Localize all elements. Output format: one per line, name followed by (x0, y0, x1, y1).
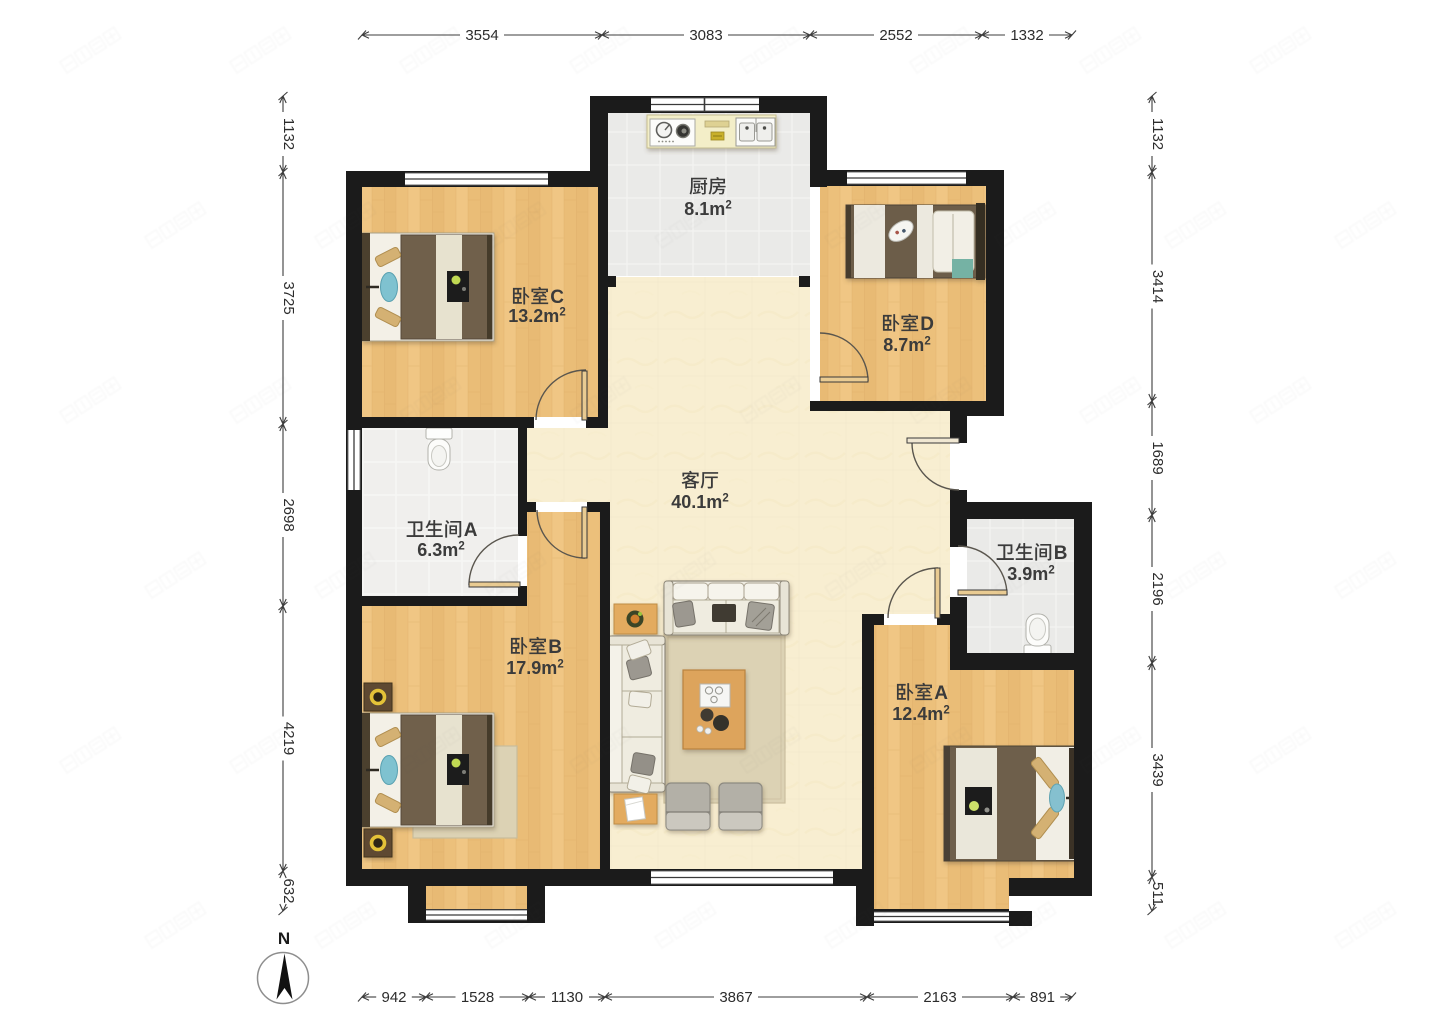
svg-text:17.9m2: 17.9m2 (506, 658, 563, 678)
svg-text:A: A (464, 520, 478, 541)
svg-text:2552: 2552 (879, 27, 912, 44)
svg-text:3439: 3439 (1149, 753, 1166, 786)
svg-text:C: C (550, 287, 564, 308)
svg-text:8.7m2: 8.7m2 (883, 335, 930, 355)
svg-text:511: 511 (1149, 882, 1166, 906)
svg-text:1689: 1689 (1149, 441, 1166, 474)
svg-text:6.3m2: 6.3m2 (417, 540, 464, 560)
svg-text:3554: 3554 (465, 27, 498, 44)
svg-text:632: 632 (280, 878, 297, 903)
svg-text:2196: 2196 (1149, 572, 1166, 605)
svg-text:12.4m2: 12.4m2 (892, 704, 949, 724)
svg-text:13.2m2: 13.2m2 (508, 306, 565, 326)
svg-text:3725: 3725 (280, 281, 297, 314)
svg-text:942: 942 (381, 989, 406, 1006)
svg-text:891: 891 (1030, 989, 1055, 1006)
svg-text:B: B (1054, 543, 1068, 564)
svg-text:1132: 1132 (1149, 118, 1166, 150)
svg-text:3083: 3083 (689, 27, 722, 44)
svg-text:3867: 3867 (719, 989, 752, 1006)
svg-text:40.1m2: 40.1m2 (671, 492, 728, 512)
svg-text:1528: 1528 (461, 989, 494, 1006)
svg-text:N: N (278, 929, 290, 948)
svg-text:1332: 1332 (1010, 27, 1043, 44)
svg-text:A: A (934, 683, 948, 704)
svg-text:1130: 1130 (551, 989, 583, 1006)
svg-text:1132: 1132 (280, 118, 297, 150)
svg-text:3414: 3414 (1149, 270, 1166, 303)
svg-text:2698: 2698 (280, 498, 297, 531)
svg-text:D: D (920, 314, 934, 335)
svg-text:B: B (548, 637, 562, 658)
svg-text:2163: 2163 (923, 989, 956, 1006)
